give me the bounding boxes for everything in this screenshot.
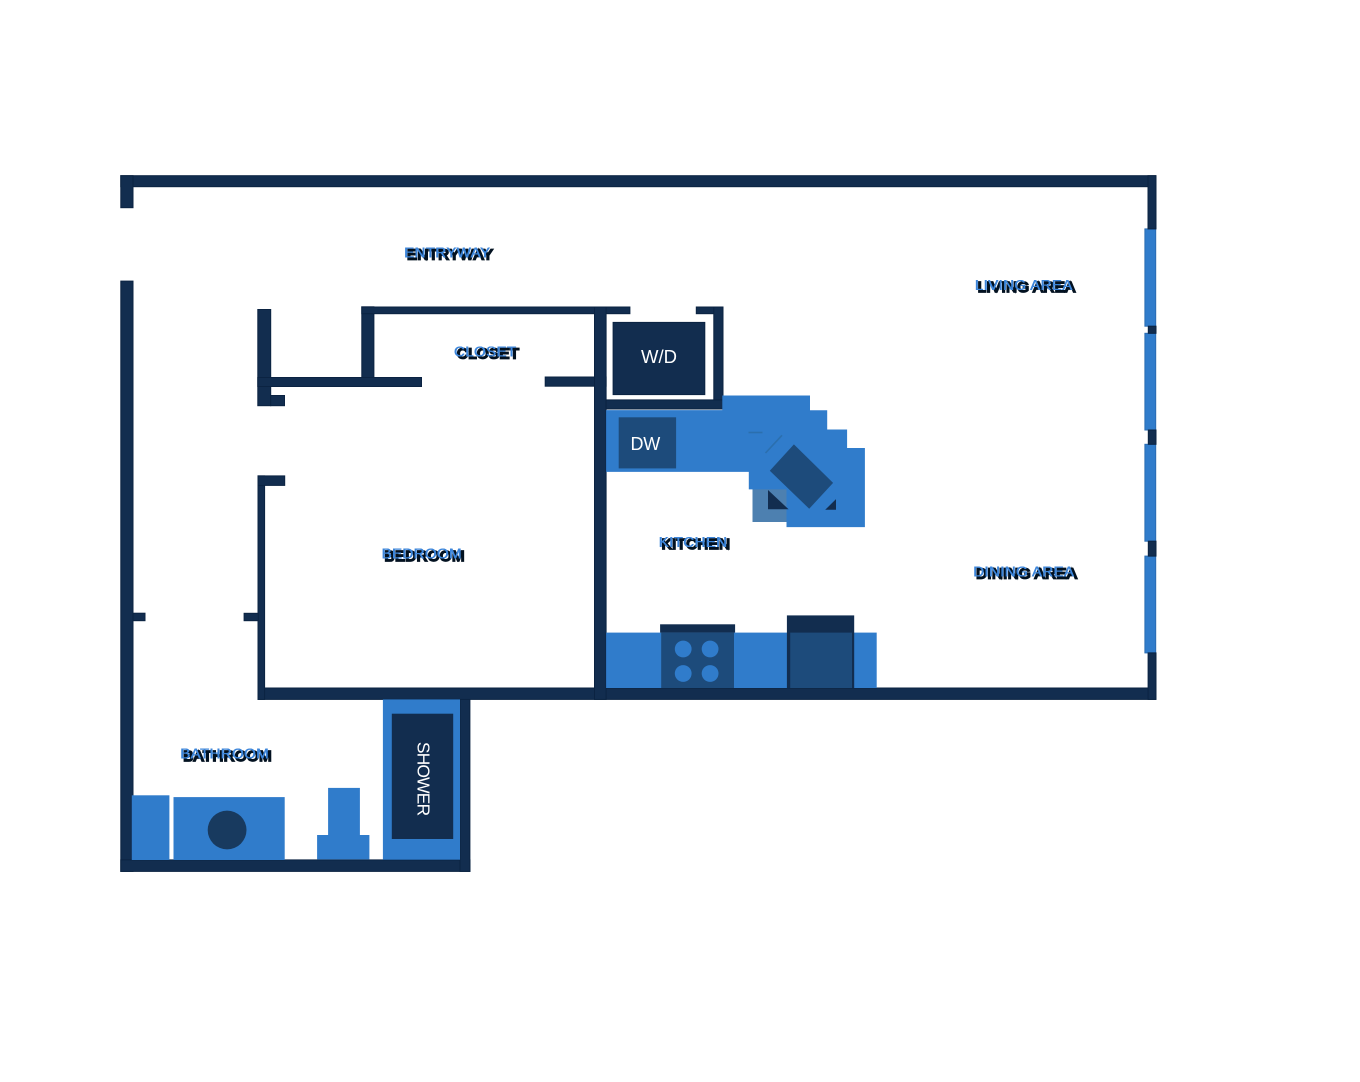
svg-text:SHOWER: SHOWER	[414, 742, 434, 816]
svg-text:W/D: W/D	[641, 346, 677, 367]
svg-text:DW: DW	[631, 434, 661, 454]
